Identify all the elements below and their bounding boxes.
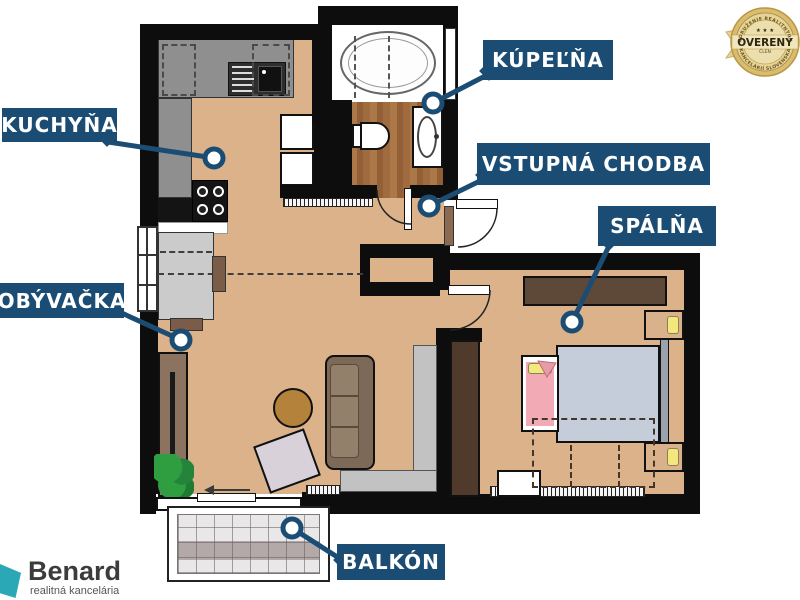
plant: [154, 454, 194, 498]
sink-drainer: [232, 66, 254, 92]
kitchen-counter-left: [158, 98, 192, 198]
chair: [170, 318, 203, 331]
table-dash-line: [160, 251, 212, 253]
balcony-door-panel: [197, 493, 256, 502]
wall: [436, 494, 700, 514]
badge-stars: ★ ★ ★: [756, 28, 774, 34]
logo-mark: [0, 564, 21, 598]
child-bed-pillow: [528, 363, 552, 374]
toilet-bowl: [360, 122, 390, 150]
chair: [212, 256, 226, 292]
upper-cabinet-dashed-2: [252, 44, 290, 96]
planned-wardrobe-divider: [618, 445, 620, 487]
wall: [410, 185, 443, 198]
tall-cabinet: [450, 340, 480, 497]
label-kupelna: KÚPEĽŇA: [483, 40, 613, 80]
radiator: [283, 198, 373, 207]
fridge-cabinet-1: [280, 114, 314, 150]
living-window-bar: [139, 254, 156, 256]
stove-burner: [213, 186, 224, 197]
wall: [140, 24, 332, 40]
sofa-seat: [330, 364, 359, 458]
label-balkon: BALKÓN: [337, 544, 445, 580]
niche-pocket: [370, 258, 433, 282]
stove-side-counter: [158, 198, 192, 222]
fridge-cabinet-2: [280, 152, 314, 186]
stove-burner: [213, 204, 224, 215]
stove-burner: [197, 204, 208, 215]
bathroom-window: [445, 28, 456, 100]
shower-line: [388, 36, 390, 98]
radiator: [306, 485, 340, 495]
wall: [360, 282, 440, 296]
entrance-open-door: [444, 206, 454, 246]
wall: [140, 24, 158, 226]
badge-title: OVERENÝ: [737, 36, 793, 49]
label-obyvacka: OBÝVAČKA: [0, 283, 124, 318]
logo-name: Benard: [28, 556, 121, 586]
planned-wardrobe-divider: [570, 445, 572, 487]
wall: [436, 328, 450, 497]
planned-wardrobe-dashed: [532, 418, 655, 488]
living-window-mullion: [146, 228, 148, 310]
wall: [360, 244, 450, 258]
wardrobe: [523, 276, 667, 306]
label-spalna: SPÁLŇA: [598, 206, 716, 246]
dining-table: [158, 232, 214, 320]
logo-tagline: realitná kancelária: [30, 585, 119, 597]
gray-unit-horizontal: [340, 470, 437, 492]
label-vstupna-chodba: VSTUPNÁ CHODBA: [477, 143, 710, 185]
wall: [437, 253, 700, 270]
bedside-lamp: [667, 316, 679, 334]
sofa-divider: [331, 395, 358, 397]
living-window-bar: [139, 284, 156, 286]
stove-burner: [197, 186, 208, 197]
bathroom-door-leaf: [404, 188, 412, 230]
coffee-table: [273, 388, 313, 428]
label-kuchyna: KUCHYŇA: [2, 108, 117, 142]
wall: [684, 253, 700, 514]
entrance-door-leaf: [456, 199, 498, 209]
shower-line: [354, 36, 356, 98]
bathroom-sink-faucet: [434, 134, 439, 139]
badge-subtitle: ČLEN: [759, 48, 771, 55]
wall: [280, 185, 377, 198]
bedside-lamp: [667, 448, 679, 466]
floorplan-page: KUCHYŇA KÚPEĽŇA VSTUPNÁ CHODBA SPÁLŇA OB…: [0, 0, 800, 600]
agency-logo: Benard realitná kancelária: [0, 556, 220, 600]
certification-badge: ZDRUŽENIE REALITNÝCH KANCELÁRIÍ SLOVENSK…: [724, 2, 800, 82]
room-dash-line: [158, 273, 363, 275]
upper-cabinet-dashed-1: [162, 44, 196, 96]
wall: [314, 100, 352, 198]
bedroom-door-leaf: [448, 285, 490, 295]
sofa-divider: [331, 426, 358, 428]
stove: [192, 180, 228, 222]
wall: [318, 6, 458, 25]
